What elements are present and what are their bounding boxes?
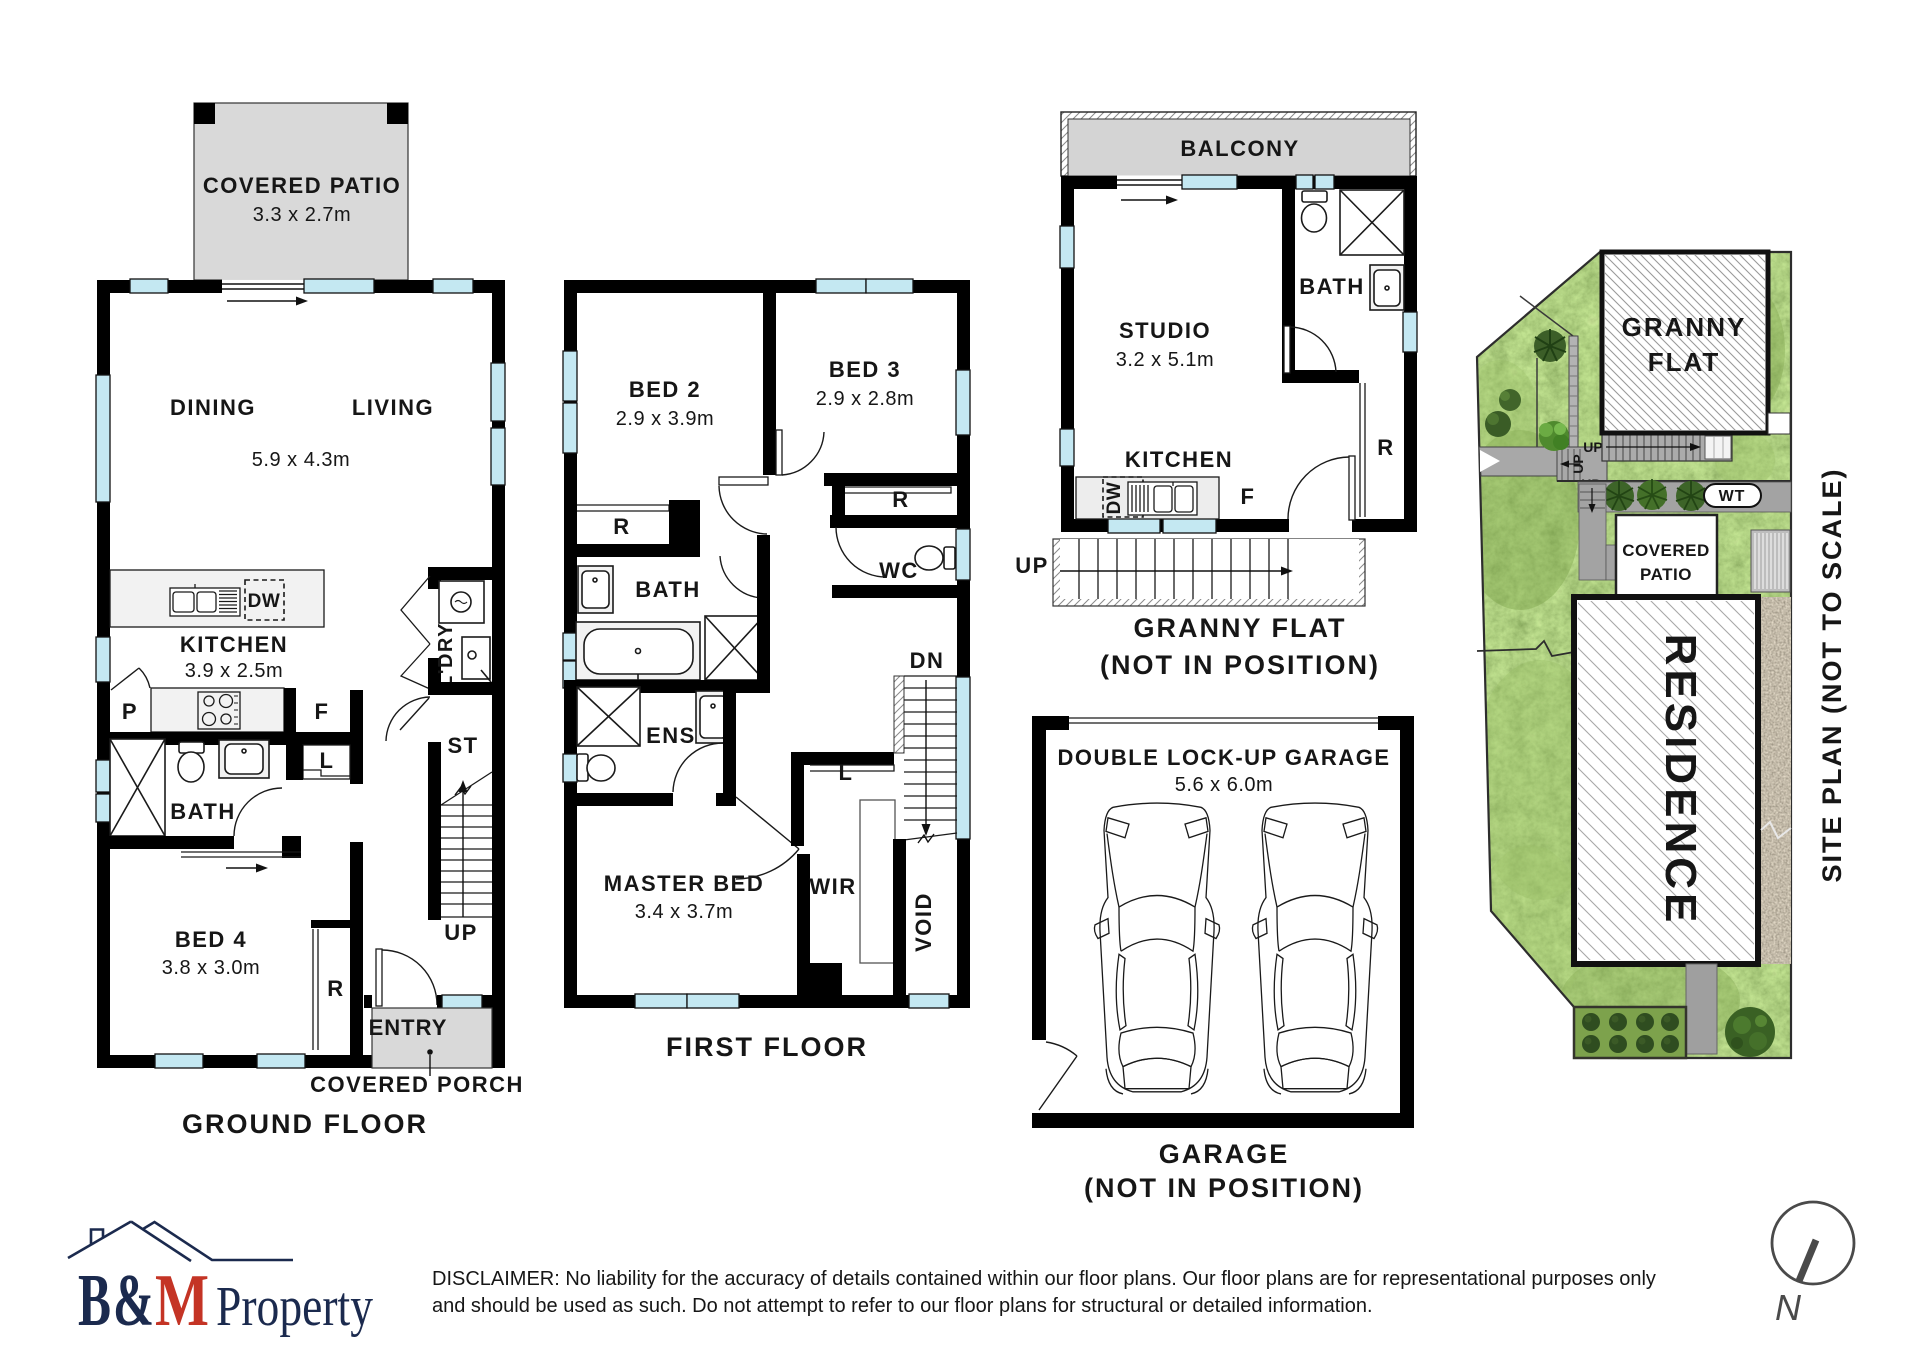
svg-text:STUDIO: STUDIO (1119, 318, 1211, 343)
svg-text:BED 4: BED 4 (175, 927, 247, 952)
svg-text:FLAT: FLAT (1648, 347, 1721, 377)
svg-text:3.8 x 3.0m: 3.8 x 3.0m (162, 957, 260, 979)
svg-text:WC: WC (879, 558, 919, 583)
svg-text:(NOT IN POSITION): (NOT IN POSITION) (1100, 650, 1380, 680)
svg-text:DISCLAIMER: No liability for t: DISCLAIMER: No liability for the accurac… (432, 1268, 1656, 1290)
svg-text:P: P (122, 699, 138, 724)
svg-text:UP: UP (444, 920, 478, 945)
svg-text:3.4 x 3.7m: 3.4 x 3.7m (635, 901, 733, 923)
svg-text:L: L (839, 760, 854, 785)
svg-text:R: R (327, 976, 344, 1001)
svg-text:and should be used as such. Do: and should be used as such. Do not attem… (432, 1295, 1373, 1317)
svg-text:L: L (320, 748, 335, 773)
svg-text:GRANNY FLAT: GRANNY FLAT (1134, 613, 1347, 643)
svg-text:ENS: ENS (646, 723, 696, 748)
svg-text:COVERED PATIO: COVERED PATIO (203, 173, 401, 198)
svg-text:BED 3: BED 3 (829, 357, 901, 382)
svg-text:3.9 x 2.5m: 3.9 x 2.5m (185, 660, 283, 682)
svg-text:WT: WT (1719, 488, 1746, 505)
svg-text:DW: DW (1104, 482, 1125, 515)
svg-text:WIR: WIR (809, 874, 856, 899)
svg-text:PATIO: PATIO (1640, 565, 1692, 584)
svg-text:Property: Property (216, 1276, 373, 1338)
svg-text:3.3 x 2.7m: 3.3 x 2.7m (253, 204, 351, 226)
svg-text:N: N (1775, 1287, 1802, 1328)
svg-text:GROUND FLOOR: GROUND FLOOR (182, 1109, 428, 1139)
svg-text:DN: DN (910, 648, 945, 673)
svg-text:COVERED: COVERED (1622, 541, 1710, 560)
svg-text:2.9 x 3.9m: 2.9 x 3.9m (616, 408, 714, 430)
svg-text:R: R (613, 514, 630, 539)
svg-text:UP: UP (1015, 553, 1049, 578)
svg-text:F: F (315, 699, 330, 724)
svg-text:R: R (892, 487, 909, 512)
svg-text:BATH: BATH (1299, 274, 1364, 299)
svg-text:UP: UP (1583, 439, 1602, 455)
svg-text:DINING: DINING (170, 395, 256, 420)
svg-text:BATH: BATH (170, 799, 235, 824)
svg-text:SITE PLAN (NOT TO SCALE): SITE PLAN (NOT TO SCALE) (1817, 467, 1847, 882)
svg-text:UP: UP (1570, 454, 1586, 473)
svg-text:M: M (155, 1260, 209, 1342)
svg-text:FIRST FLOOR: FIRST FLOOR (666, 1032, 868, 1062)
svg-text:BATH: BATH (635, 577, 700, 602)
svg-text:KITCHEN: KITCHEN (180, 632, 288, 657)
svg-text:5.9 x 4.3m: 5.9 x 4.3m (252, 449, 350, 471)
svg-text:BALCONY: BALCONY (1180, 136, 1299, 161)
svg-text:3.2 x 5.1m: 3.2 x 5.1m (1116, 349, 1214, 371)
svg-text:DW: DW (248, 591, 281, 612)
svg-text:DOUBLE LOCK-UP GARAGE: DOUBLE LOCK-UP GARAGE (1058, 745, 1391, 770)
svg-text:LIVING: LIVING (352, 395, 434, 420)
svg-text:COVERED PORCH: COVERED PORCH (310, 1072, 524, 1097)
svg-text:BED 2: BED 2 (629, 377, 701, 402)
svg-text:L'DRY: L'DRY (435, 622, 457, 688)
svg-text:VOID: VOID (911, 892, 936, 952)
svg-text:GARAGE: GARAGE (1159, 1139, 1290, 1169)
svg-text:&: & (113, 1260, 154, 1342)
svg-text:MASTER BED: MASTER BED (604, 871, 764, 896)
svg-text:GRANNY: GRANNY (1622, 312, 1747, 342)
svg-text:R: R (1377, 435, 1394, 460)
svg-text:KITCHEN: KITCHEN (1125, 447, 1233, 472)
svg-text:B: B (78, 1260, 111, 1342)
svg-text:ST: ST (447, 733, 478, 758)
svg-text:(NOT IN POSITION): (NOT IN POSITION) (1084, 1173, 1364, 1203)
svg-text:F: F (1241, 484, 1256, 509)
svg-text:2.9 x 2.8m: 2.9 x 2.8m (816, 388, 914, 410)
svg-text:RESIDENCE: RESIDENCE (1656, 634, 1705, 927)
svg-text:ENTRY: ENTRY (369, 1015, 448, 1040)
svg-text:5.6 x 6.0m: 5.6 x 6.0m (1175, 774, 1273, 796)
